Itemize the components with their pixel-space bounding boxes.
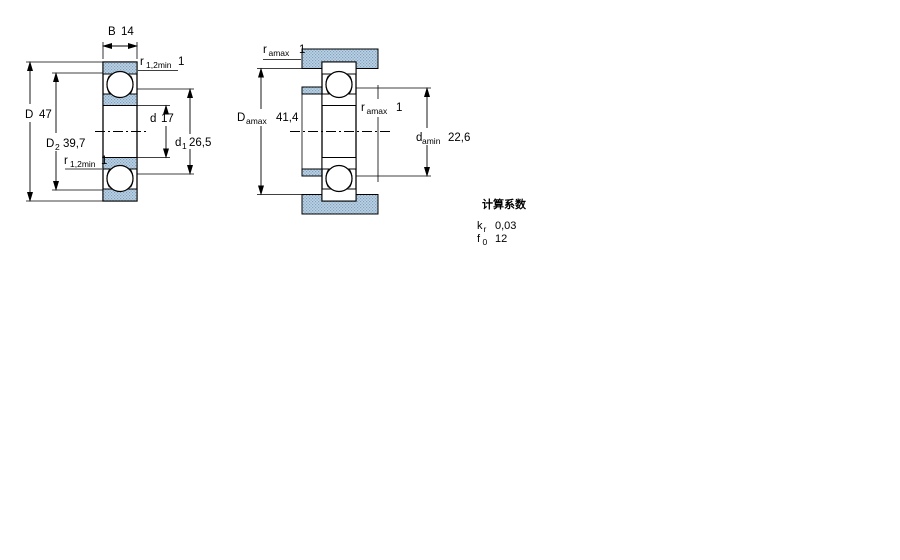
- dim-ra-top-sub: amax: [269, 48, 291, 58]
- shaft-shoulder-bottom: [302, 169, 322, 176]
- dim-B-value: 14: [121, 26, 134, 38]
- section-view: B 14 r 1,2min 1 D 47 D 2 39,7 r 1,2min 1…: [25, 26, 211, 201]
- calculation-factors-heading: 计算系数: [482, 197, 527, 211]
- dim-ra-top-label: r: [263, 44, 267, 56]
- dim-da-value: 22,6: [448, 132, 470, 144]
- dim-D2-value: 39,7: [63, 138, 85, 150]
- dim-D2-sub: 2: [55, 142, 60, 152]
- dim-D-label: D: [25, 109, 33, 121]
- factor-f0-value: 12: [495, 233, 507, 245]
- dim-ra-mid-value: 1: [396, 102, 402, 114]
- calculation-factors: 计算系数 k r 0,03 f 0 12: [477, 197, 527, 247]
- dim-d-value: 17: [161, 113, 174, 125]
- dim-r-bottom-label: r: [64, 155, 68, 167]
- ball-bottom: [326, 166, 352, 192]
- factor-kr-label: k: [477, 220, 483, 232]
- factor-kr-sub: r: [484, 224, 487, 234]
- ball-top: [107, 72, 133, 98]
- dim-r-bottom-sub: 1,2min: [70, 159, 96, 169]
- dim-D-value: 47: [39, 109, 52, 121]
- dim-B-label: B: [108, 26, 116, 38]
- factor-f0-sub: 0: [483, 237, 488, 247]
- mounting-view: r amax 1 D amax 41,4 r amax 1 d amin 22,…: [237, 44, 470, 214]
- dim-Da-sub: amax: [246, 116, 268, 126]
- dim-r-top-sub: 1,2min: [146, 60, 172, 70]
- dim-Da-label: D: [237, 112, 245, 124]
- dim-Da-value: 41,4: [276, 112, 299, 124]
- shaft-shoulder-top: [302, 87, 322, 94]
- dim-d1-sub: 1: [182, 141, 187, 151]
- dim-da-sub: amin: [422, 136, 441, 146]
- dim-d-label: d: [150, 113, 156, 125]
- dim-D2-label: D: [46, 138, 54, 150]
- dim-r-bottom-value: 1: [101, 155, 107, 167]
- ball-bottom: [107, 166, 133, 192]
- dim-ra-mid-label: r: [361, 102, 365, 114]
- dim-ra-mid-sub: amax: [367, 106, 389, 116]
- ball-top: [326, 72, 352, 98]
- dim-r-top-label: r: [140, 56, 144, 68]
- dim-d1-value: 26,5: [189, 137, 211, 149]
- bearing-technical-drawing: B 14 r 1,2min 1 D 47 D 2 39,7 r 1,2min 1…: [0, 0, 900, 560]
- dim-ra-top-value: 1: [299, 44, 305, 56]
- dim-d1-label: d: [175, 137, 181, 149]
- dim-r-top-value: 1: [178, 56, 184, 68]
- factor-f0-label: f: [477, 233, 481, 245]
- factor-kr-value: 0,03: [495, 220, 516, 232]
